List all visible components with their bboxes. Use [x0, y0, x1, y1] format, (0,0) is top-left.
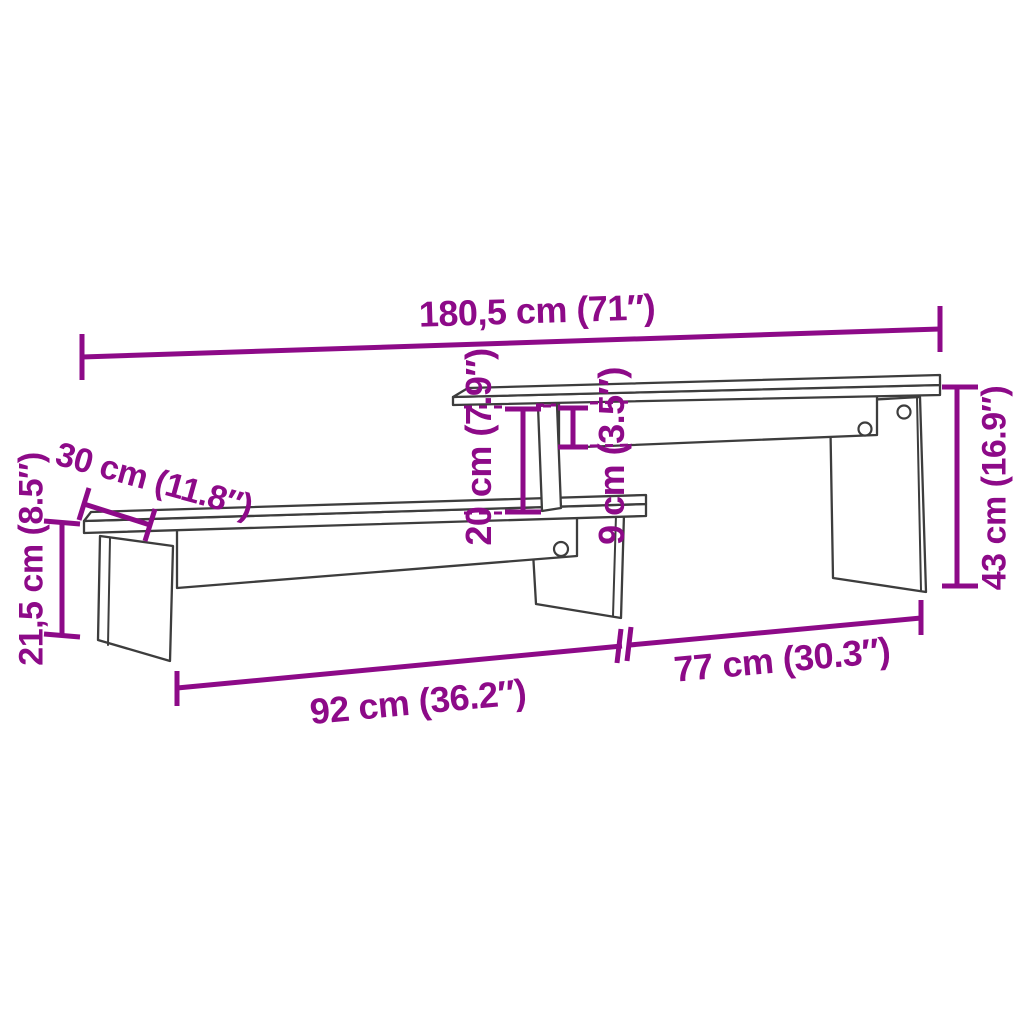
dim-label-rail-height: 9 cm (3.5″) — [591, 367, 633, 545]
dimension-break-mark — [617, 627, 631, 663]
cam-hole — [898, 406, 911, 419]
dim-label-lower-height: 21,5 cm (8.5″) — [13, 452, 52, 665]
dim-upper-height — [942, 387, 978, 586]
cam-hole — [554, 542, 568, 556]
dim-label-tier-gap: 20 cm (7.9″) — [458, 348, 500, 545]
cam-hole — [859, 423, 872, 436]
furniture-line-drawing — [0, 0, 1024, 1024]
diagram-canvas: 180,5 cm (71″) 30 cm (11.8″) 21,5 cm (8.… — [0, 0, 1024, 1024]
middle-divider-panel — [538, 405, 561, 511]
dim-label-upper-height: 43 cm (16.9″) — [976, 386, 1015, 590]
tv-stand-drawing — [84, 375, 940, 661]
dim-label-total-width: 180,5 cm (71″) — [418, 286, 656, 335]
